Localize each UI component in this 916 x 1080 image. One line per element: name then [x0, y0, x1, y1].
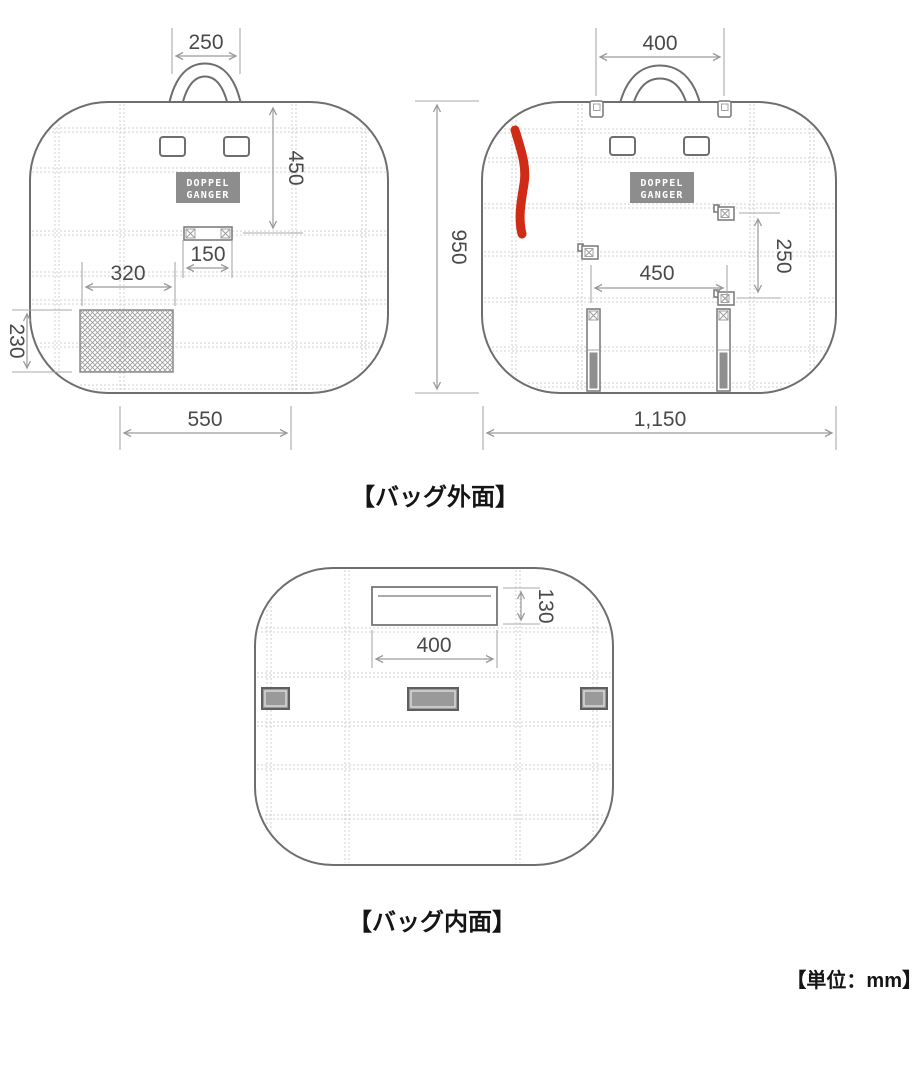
velcro-tab-center — [408, 688, 458, 710]
dimension-bottom-width-550: 550 — [120, 406, 291, 450]
dim-label-400-interior: 400 — [416, 634, 451, 657]
bottom-strap-left — [587, 309, 600, 391]
caption-bag-interior: 【バッグ内面】 — [348, 909, 516, 936]
dim-label-450: 450 — [284, 150, 307, 185]
bag-exterior-front-view: DOPPEL GANGER 250 450 — [5, 28, 388, 450]
interior-pocket — [372, 587, 497, 625]
handle-base-left — [160, 137, 185, 156]
center-strap — [184, 227, 232, 240]
caption-bag-exterior: 【バッグ外面】 — [351, 483, 519, 511]
handle-base-left — [610, 137, 635, 155]
bag-interior-view: 130 400 — [255, 568, 613, 865]
dim-label-400: 400 — [642, 32, 677, 55]
logo-text-line2: GANGER — [186, 190, 229, 201]
dim-label-320: 320 — [110, 262, 145, 285]
unit-note: 【単位：mm】 — [786, 968, 916, 992]
dim-label-230: 230 — [5, 323, 28, 358]
handle-base-right — [224, 137, 249, 156]
brand-logo-patch: DOPPEL GANGER — [176, 172, 240, 203]
dim-label-250: 250 — [188, 31, 223, 54]
velcro-tab-left — [262, 688, 289, 709]
dim-label-150: 150 — [190, 243, 225, 266]
logo-text-line2: GANGER — [640, 190, 683, 201]
dim-label-1150: 1,150 — [634, 408, 687, 431]
dimension-handle-width-400: 400 — [596, 28, 724, 96]
velcro-tab-right — [581, 688, 607, 709]
dimension-height-950: 950 — [415, 101, 479, 393]
top-clip-left — [590, 101, 603, 117]
dim-label-450-right: 450 — [639, 262, 674, 285]
dim-label-950: 950 — [447, 229, 470, 264]
dimension-bottom-width-1150: 1,150 — [483, 406, 836, 450]
dim-label-130: 130 — [534, 588, 557, 623]
product-dimension-diagram: DOPPEL GANGER 250 450 — [0, 0, 916, 1080]
logo-text-line1: DOPPEL — [640, 178, 683, 189]
dim-label-550: 550 — [187, 408, 222, 431]
logo-text-line1: DOPPEL — [186, 178, 229, 189]
handle-base-right — [684, 137, 709, 155]
mesh-pocket — [80, 310, 173, 372]
brand-logo-patch: DOPPEL GANGER — [630, 172, 694, 203]
bottom-strap-right — [717, 309, 730, 391]
diagram-canvas: DOPPEL GANGER 250 450 — [0, 0, 916, 1080]
dim-label-250-right: 250 — [772, 238, 795, 273]
top-clip-right — [718, 101, 731, 117]
bag-exterior-back-view: DOPPEL GANGER — [415, 28, 836, 450]
